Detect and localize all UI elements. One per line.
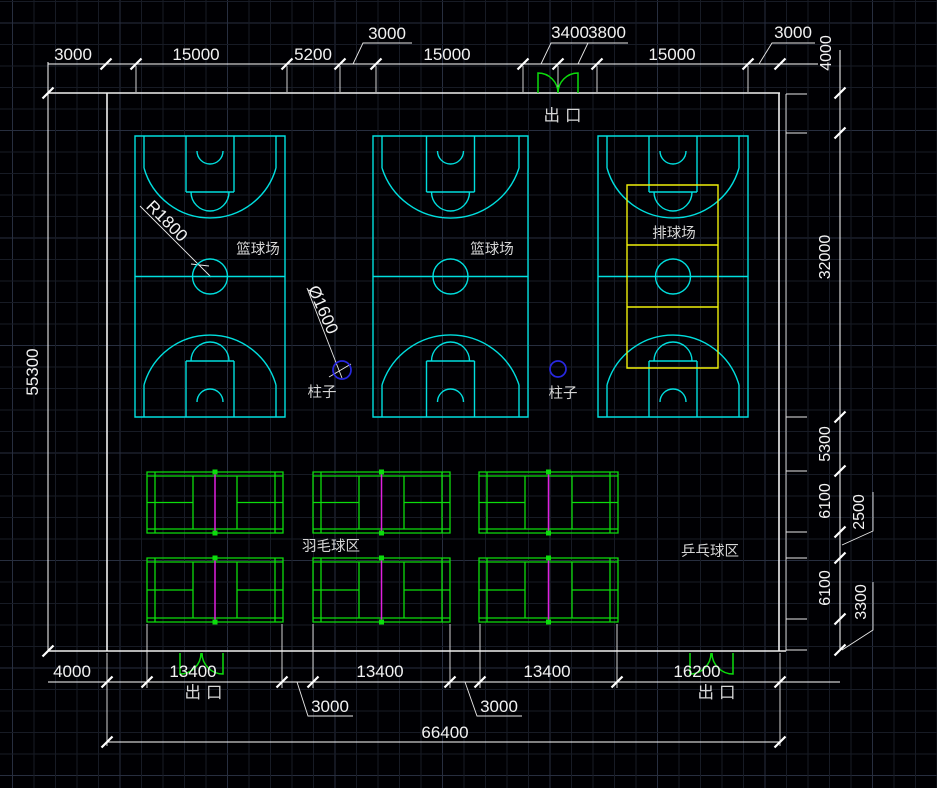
dim-label: 13400 xyxy=(169,662,216,681)
dim-label: 3000 xyxy=(480,697,518,716)
dim-label: 3000 xyxy=(774,23,812,42)
dim-label: 13400 xyxy=(356,662,403,681)
dim-label: 3300 xyxy=(853,584,870,620)
dim-label: 5200 xyxy=(294,45,332,64)
dim-label: 3000 xyxy=(311,697,349,716)
dim-label: 15000 xyxy=(423,45,470,64)
dim-label: 4000 xyxy=(818,35,835,71)
dim-label: 4000 xyxy=(53,662,91,681)
basketball-court-label-1: 篮球场 xyxy=(236,240,280,258)
dim-label: 55300 xyxy=(23,348,42,395)
cad-drawing-canvas[interactable]: 3000 15000 5200 3000 15000 3400 3800 150… xyxy=(0,0,937,788)
table-tennis-area-label: 乒乓球区 xyxy=(681,543,739,560)
dim-label-total: 66400 xyxy=(421,723,468,742)
exit-label-bottom-left: 出口 xyxy=(185,683,228,702)
dim-label: 15000 xyxy=(648,45,695,64)
volleyball-court-label: 排球场 xyxy=(652,225,696,242)
dim-label: 3000 xyxy=(54,45,92,64)
exit-label-bottom-right: 出口 xyxy=(698,683,741,702)
dim-label: 13400 xyxy=(523,662,570,681)
dim-label: 3400 xyxy=(551,23,589,42)
dim-label: 2500 xyxy=(851,494,868,530)
dim-label: 3800 xyxy=(588,23,626,42)
column-label-1: 柱子 xyxy=(308,384,337,401)
dim-label: 5300 xyxy=(817,426,834,462)
dim-label: 3000 xyxy=(368,24,406,43)
dim-label: 15000 xyxy=(172,45,219,64)
exit-label-top: 出口 xyxy=(544,106,587,125)
dim-label: 6100 xyxy=(817,570,834,606)
dim-label: 16200 xyxy=(673,662,720,681)
dim-label: 6100 xyxy=(817,483,834,519)
badminton-area-label: 羽毛球区 xyxy=(302,538,360,555)
column-label-2: 柱子 xyxy=(549,385,578,402)
floor-plan-svg: 3000 15000 5200 3000 15000 3400 3800 150… xyxy=(0,0,937,788)
basketball-court-label-2: 篮球场 xyxy=(470,240,514,258)
dim-label: 32000 xyxy=(817,235,834,280)
background-grid xyxy=(0,0,937,788)
